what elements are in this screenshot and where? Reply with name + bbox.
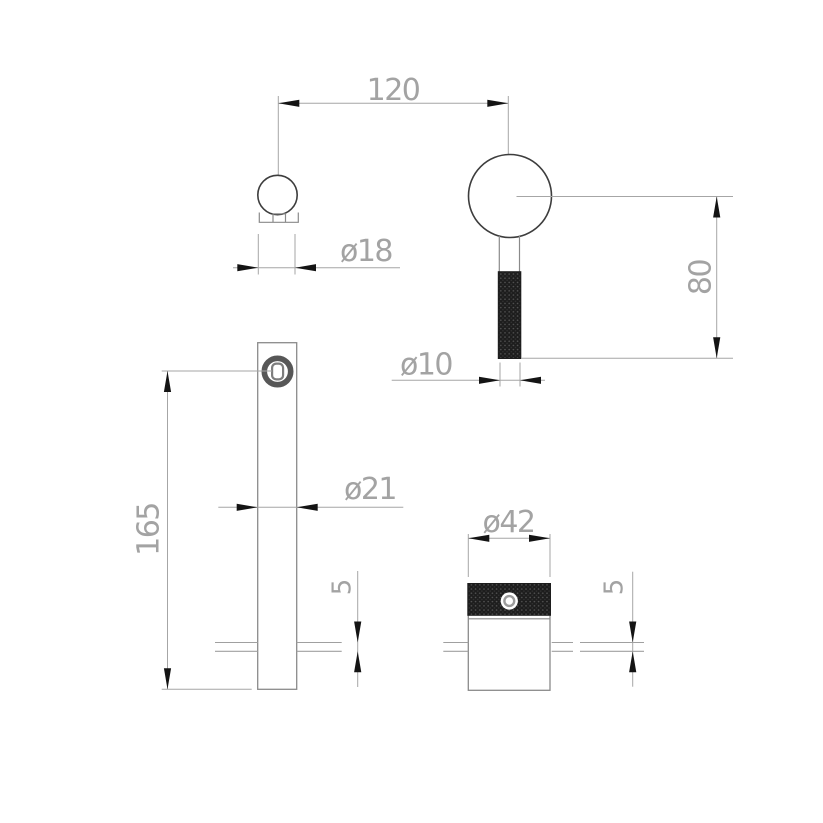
dimension-spout-diameter: ø21 [218, 472, 403, 511]
dim-arrow [278, 100, 299, 107]
dimension-handle-length: 80 [517, 197, 734, 359]
wall-rosette-side-view [468, 584, 551, 691]
knurled-stem [498, 272, 521, 359]
dim-arrow [354, 651, 361, 672]
dim-arrow [629, 651, 636, 672]
dimension-rosette-diameter: ø42 [468, 505, 550, 577]
dimension-rosette-plate-thickness: 5 [600, 572, 637, 687]
dim-arrow [520, 377, 541, 384]
dim-arrow [487, 100, 508, 107]
dimension-stem-diameter: ø10 [392, 348, 545, 387]
technical-drawing-canvas: 120 ø18 80 ø10 [0, 0, 823, 823]
dimension-knob-diameter: ø18 [233, 234, 400, 275]
rosette-screw-hole [504, 596, 514, 606]
dim-label-stem-diameter: ø10 [400, 348, 452, 383]
dim-arrow [629, 622, 636, 643]
dim-label-knob-diameter: ø18 [340, 234, 392, 269]
handle-side-view [469, 155, 552, 359]
dim-arrow [295, 264, 316, 271]
dim-arrow [164, 371, 171, 392]
dim-label-spout-diameter: ø21 [344, 472, 396, 507]
spout-body [258, 343, 297, 690]
dimension-spout-height: 165 [132, 371, 273, 689]
dim-arrow [164, 668, 171, 689]
dim-label-rosette-plate-thickness: 5 [600, 579, 630, 596]
handle-front-view [258, 175, 299, 222]
dim-arrow [237, 504, 258, 511]
dim-label-spout-plate-thickness: 5 [328, 579, 358, 596]
spout-front-view [258, 343, 297, 690]
dim-label-handle-spacing: 120 [367, 73, 420, 108]
dim-arrow [354, 622, 361, 643]
dim-label-rosette-diameter: ø42 [482, 505, 534, 540]
dim-arrow [479, 377, 500, 384]
dim-arrow [713, 337, 720, 358]
knob-circle [258, 175, 297, 214]
dim-arrow [237, 264, 258, 271]
dim-arrow [297, 504, 318, 511]
dim-arrow [713, 197, 720, 218]
dim-label-handle-length: 80 [684, 260, 719, 296]
dim-label-spout-height: 165 [132, 503, 167, 556]
dimension-spout-plate-thickness: 5 [328, 571, 362, 687]
